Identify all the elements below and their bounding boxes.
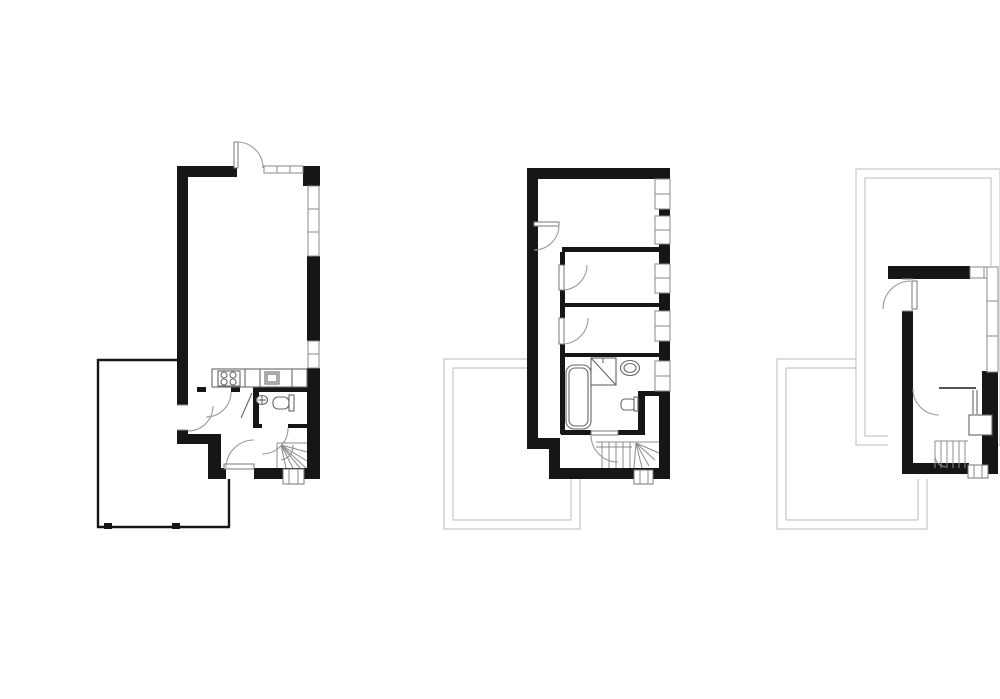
washbasin-bowl xyxy=(624,364,636,373)
wall-top xyxy=(527,168,670,179)
stove-burner xyxy=(230,379,236,385)
wall-bottom-left xyxy=(208,468,226,479)
toilet-tank xyxy=(289,395,294,411)
wall-left xyxy=(902,311,913,474)
entrance-door-leaf xyxy=(234,142,238,168)
corner-window-vertical xyxy=(987,267,998,372)
plan-first-floor xyxy=(444,168,670,529)
room3-door-leaf xyxy=(559,318,564,344)
window-right-large xyxy=(308,186,319,256)
stove-burner xyxy=(221,372,227,378)
entry-threshold xyxy=(634,470,653,484)
wall-left xyxy=(177,166,188,405)
kitchen-sink-basin xyxy=(267,374,277,382)
garden-door-leaf xyxy=(224,464,254,469)
toilet-tank xyxy=(634,397,638,411)
wall-kitchen-b xyxy=(231,387,240,392)
wall-bathroom-bottom-a xyxy=(561,430,591,435)
wall-room2 xyxy=(561,303,670,307)
entrance-door-swing xyxy=(237,142,263,168)
entry-threshold xyxy=(968,465,988,478)
wall-wc-bottom-b xyxy=(288,424,307,428)
entry-threshold xyxy=(283,469,304,484)
toilet-bowl xyxy=(273,397,289,409)
bathroom-door-leaf xyxy=(591,431,618,435)
wall-top xyxy=(888,266,970,279)
wall-left xyxy=(527,168,538,449)
floorplan-svg xyxy=(40,16,1000,683)
window-top xyxy=(264,166,303,173)
wall-kitchen-c xyxy=(253,387,307,392)
floor-area xyxy=(177,166,320,479)
wall-right-lower xyxy=(307,368,320,479)
wall-corner-ne xyxy=(303,166,320,186)
wall-corridor-b xyxy=(560,290,565,318)
wall-corridor-c xyxy=(560,344,565,434)
wall-right-upper xyxy=(307,256,320,341)
room1-door-leaf xyxy=(534,222,559,226)
bathtub-basin xyxy=(569,368,588,426)
plan-ground-floor xyxy=(97,142,320,529)
floor-plan-sheet xyxy=(40,16,1000,683)
stove-burner xyxy=(230,372,236,378)
wall-room1 xyxy=(562,247,670,252)
wall-kitchen-a xyxy=(197,387,206,392)
wall-bathroom-top xyxy=(561,353,670,357)
wall-toilet-stub-horizontal xyxy=(638,391,659,396)
skylight-shaft xyxy=(969,415,992,435)
wall-wc-bottom-a xyxy=(253,424,262,428)
stove-burner xyxy=(221,379,227,385)
terrace-post xyxy=(104,523,112,529)
room2-door-leaf xyxy=(559,265,564,290)
wall-corridor-a xyxy=(560,252,565,265)
toilet-bowl xyxy=(621,399,635,410)
plan-roof-level xyxy=(777,169,1000,529)
entry-door-leaf xyxy=(912,281,917,309)
terrace-post xyxy=(172,523,180,529)
wall-toilet-stub-vertical xyxy=(638,391,645,435)
